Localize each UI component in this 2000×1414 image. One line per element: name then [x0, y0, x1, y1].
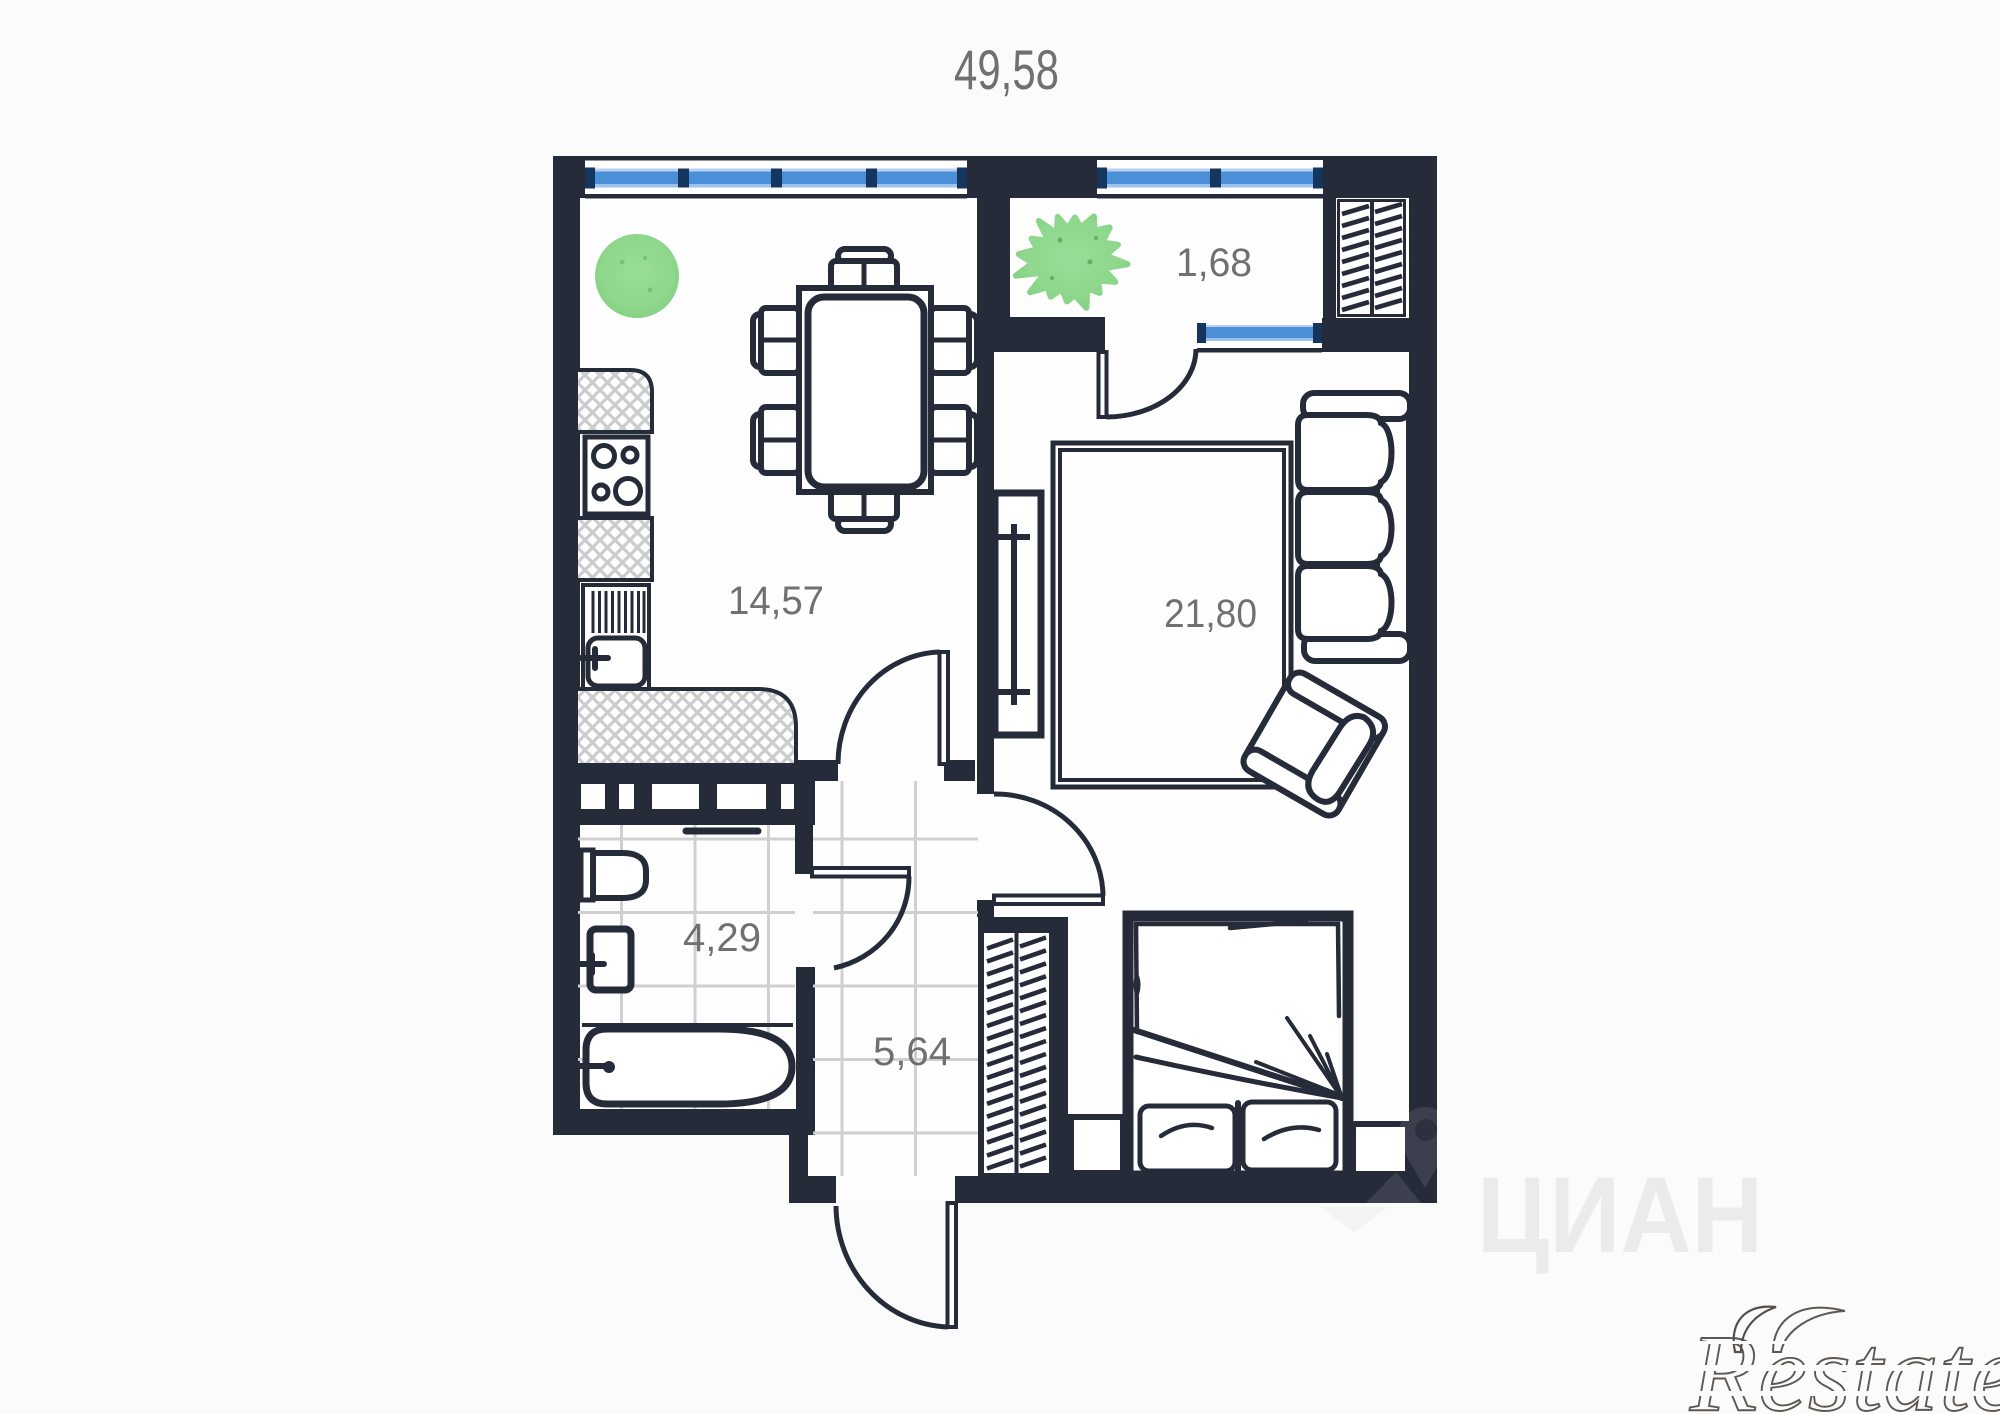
svg-text:14,57: 14,57	[728, 579, 824, 623]
svg-text:5,64: 5,64	[873, 1030, 951, 1074]
svg-text:21,80: 21,80	[1164, 592, 1257, 636]
svg-text:49,58: 49,58	[954, 38, 1059, 101]
svg-text:ЦИАН: ЦИАН	[1477, 1154, 1763, 1275]
svg-text:1,68: 1,68	[1176, 241, 1252, 285]
svg-text:4,29: 4,29	[683, 916, 761, 960]
